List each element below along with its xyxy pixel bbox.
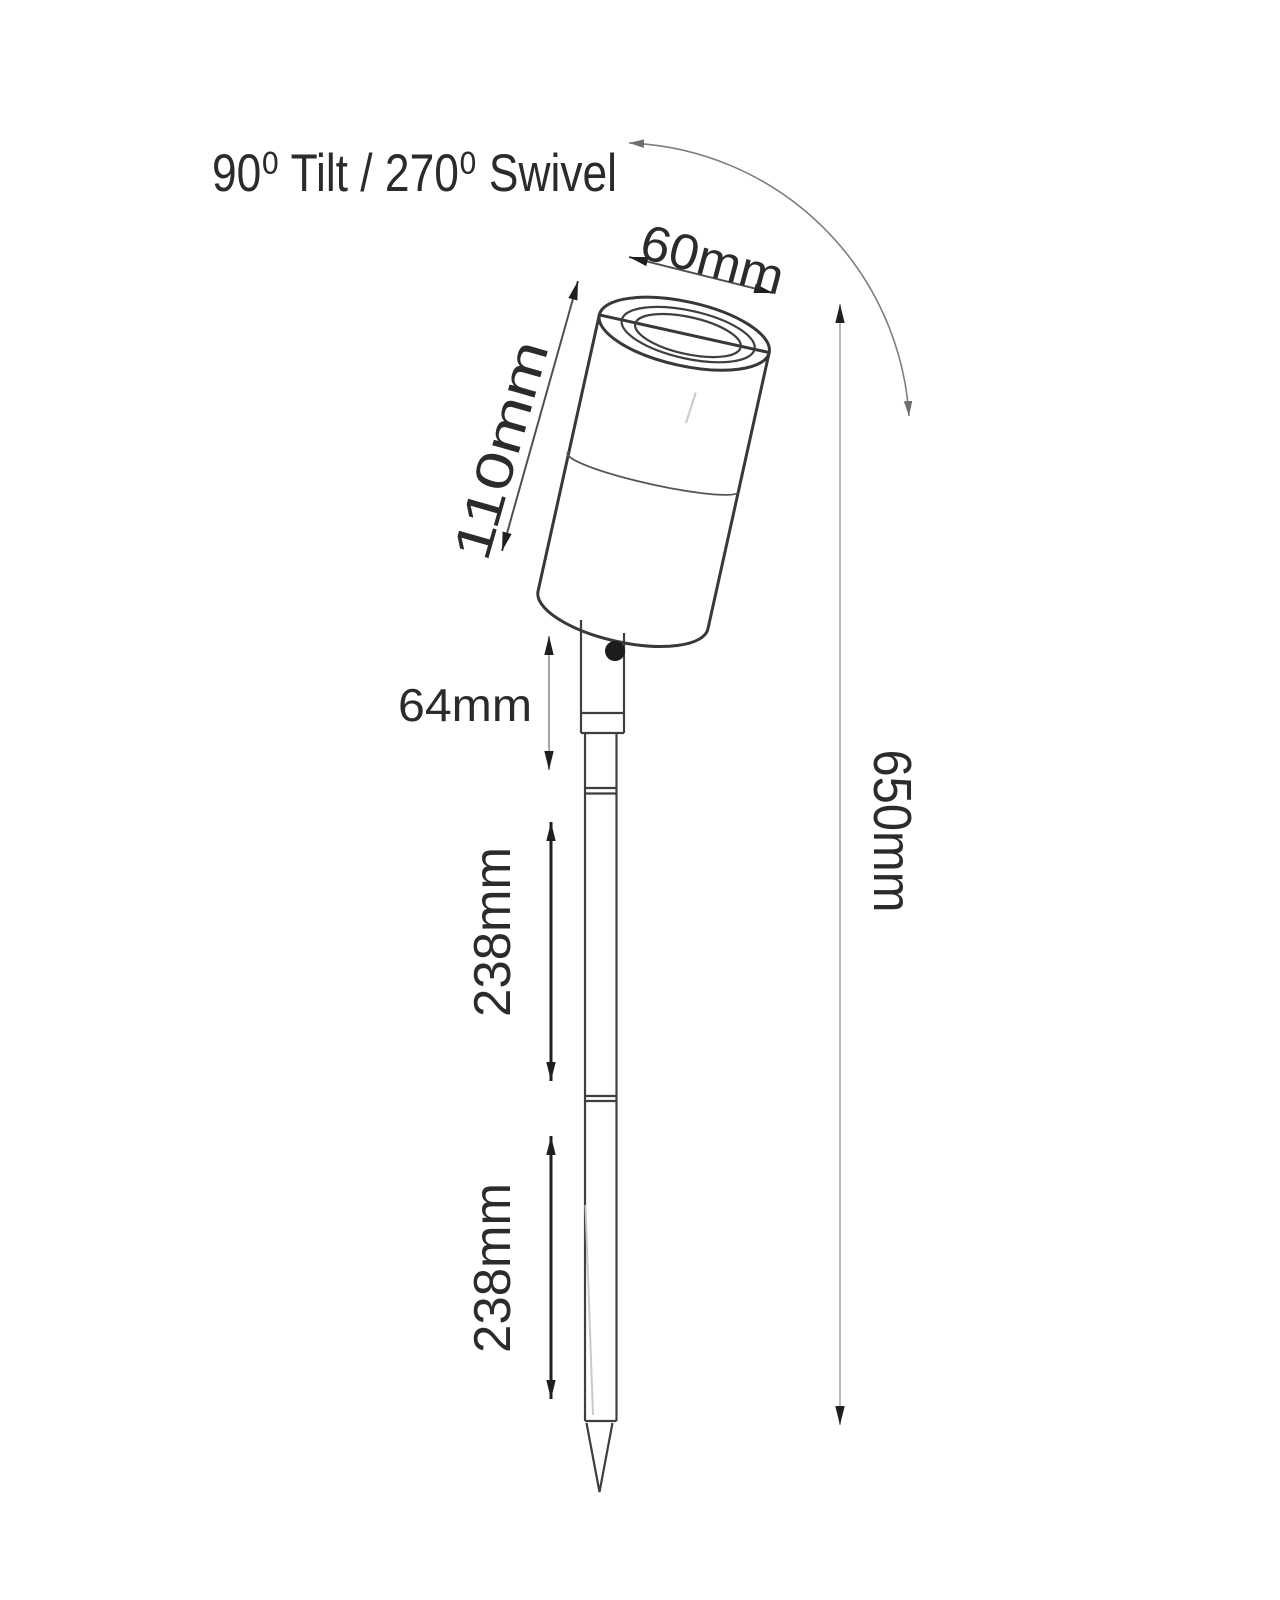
diagram-canvas: 90⁰ Tilt / 270⁰ Swivel 60mm 110mm 64mm 2…	[0, 0, 1280, 1600]
spike-joint-upper	[585, 788, 617, 794]
lamp-head-body	[531, 315, 769, 660]
dimension-annotations: 90⁰ Tilt / 270⁰ Swivel 60mm 110mm 64mm 2…	[212, 143, 922, 1425]
lamp-body-seam	[565, 451, 739, 503]
dim-650mm-label: 650mm	[862, 750, 922, 913]
dim-110mm-label: 110mm	[443, 334, 561, 566]
dim-60mm-label: 60mm	[635, 214, 791, 306]
spike-light-dimension-diagram: 90⁰ Tilt / 270⁰ Swivel 60mm 110mm 64mm 2…	[0, 0, 1280, 1600]
spike-tip	[587, 1423, 613, 1492]
dim-238mm-upper-label: 238mm	[464, 847, 522, 1017]
dim-64mm-label: 64mm	[398, 679, 532, 731]
spike-joint-lower	[585, 1096, 617, 1101]
lamp-body-highlight	[686, 392, 696, 424]
title-label: 90⁰ Tilt / 270⁰ Swivel	[212, 144, 617, 203]
spotlight-product	[530, 283, 776, 1492]
swivel-knob	[605, 641, 625, 661]
spike-taper-line	[586, 1205, 594, 1415]
lamp-head	[530, 283, 776, 660]
dim-238mm-lower-label: 238mm	[464, 1183, 522, 1353]
